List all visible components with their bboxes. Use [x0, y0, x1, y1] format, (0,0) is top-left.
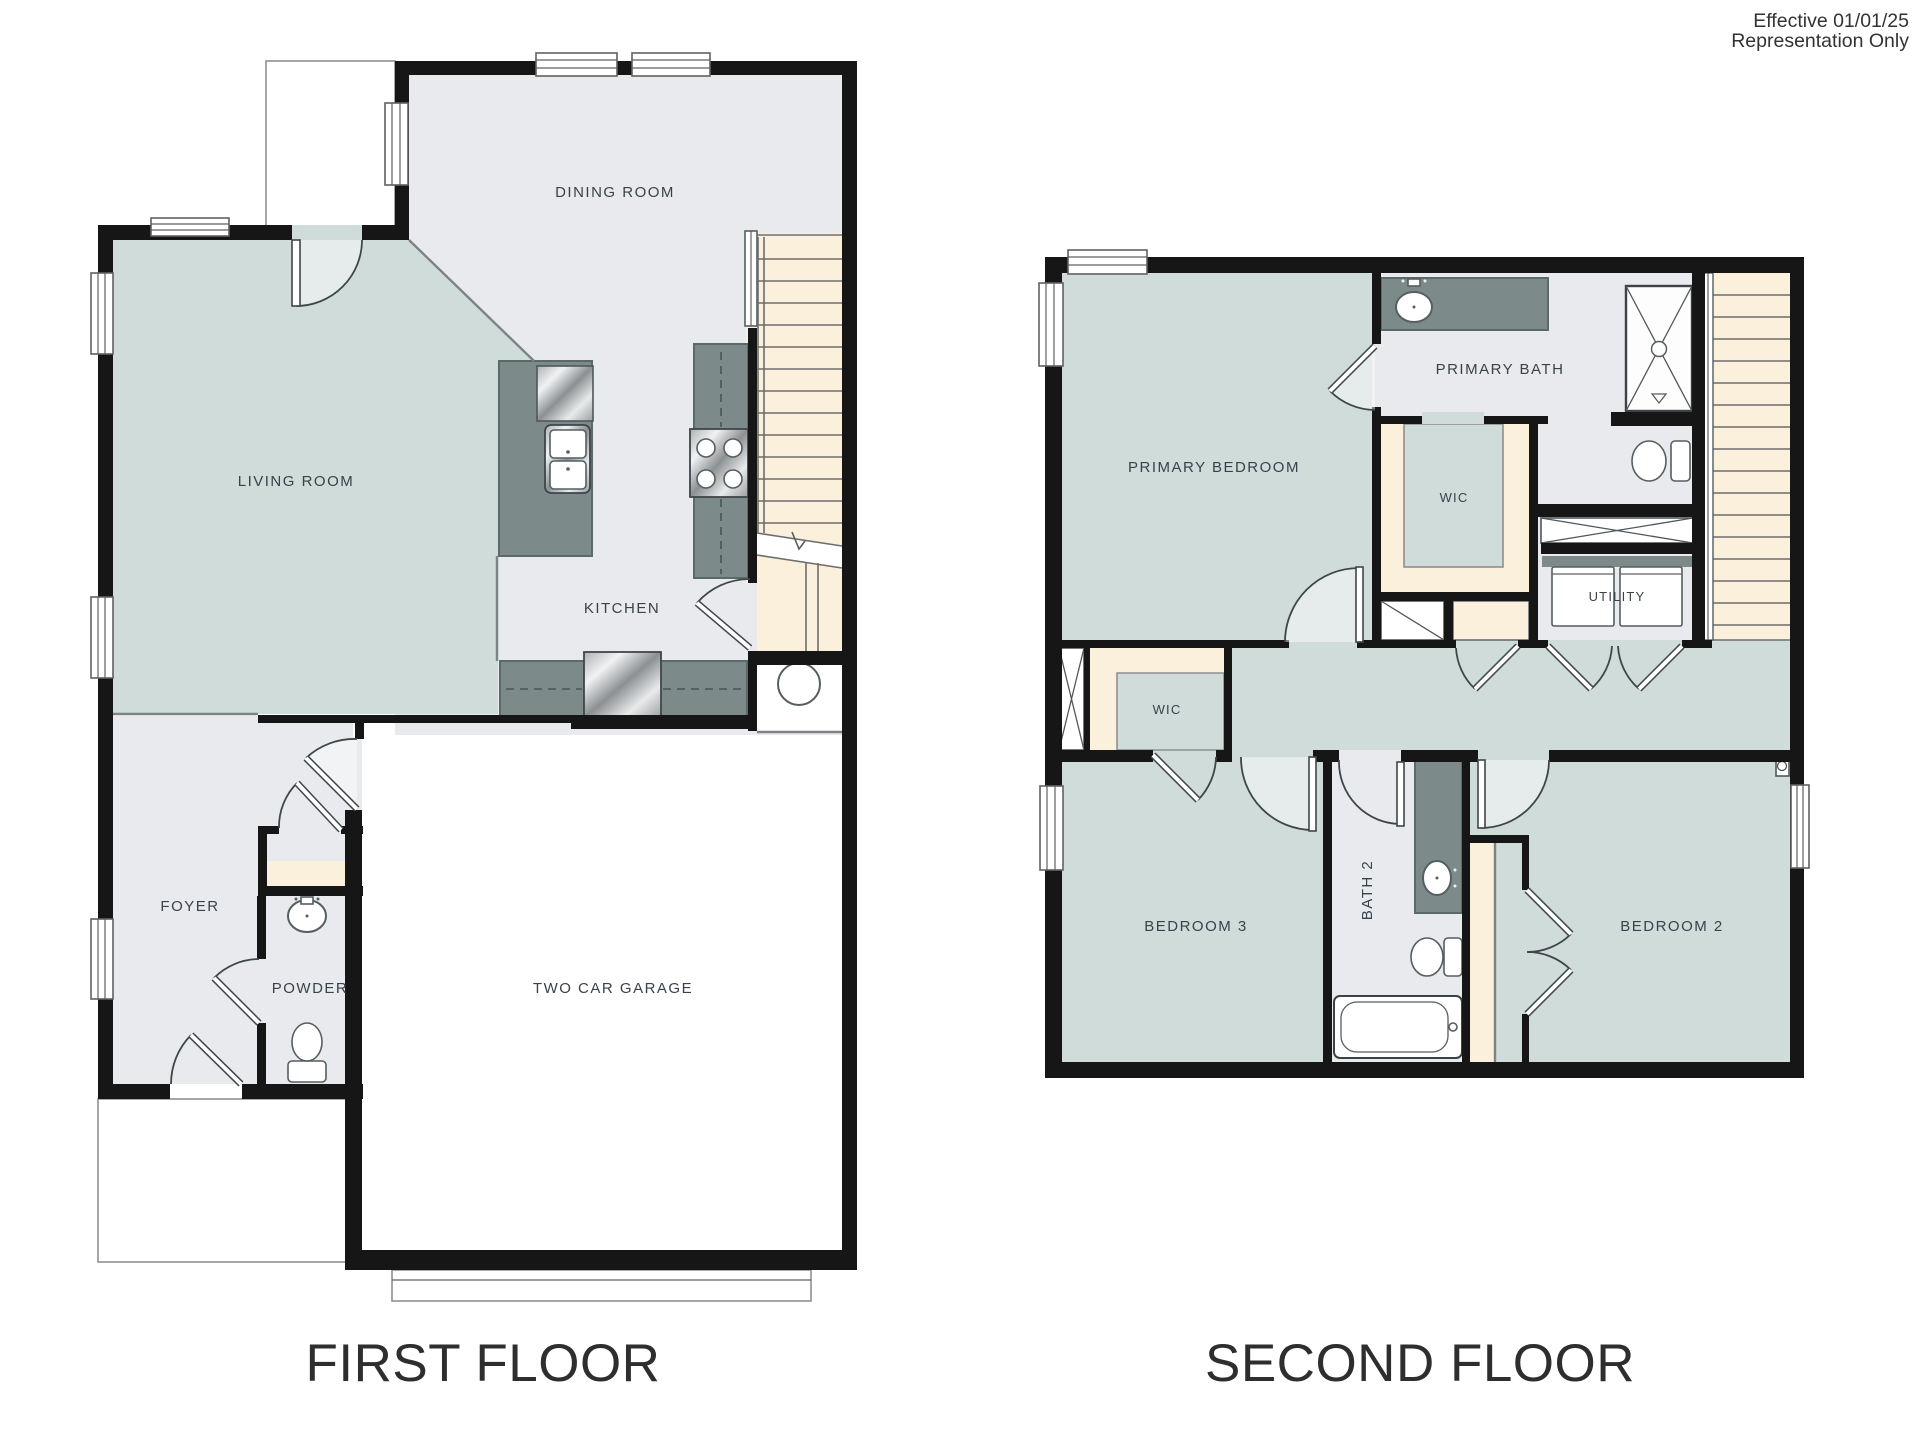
svg-text:KITCHEN: KITCHEN [584, 600, 660, 617]
svg-text:WIC: WIC [1153, 702, 1182, 717]
svg-text:PRIMARY BEDROOM: PRIMARY BEDROOM [1128, 459, 1300, 476]
svg-text:Effective 01/01/25: Effective 01/01/25 [1753, 10, 1909, 32]
svg-text:POWDER: POWDER [272, 980, 349, 997]
svg-text:WIC: WIC [1440, 490, 1469, 505]
svg-text:BEDROOM 3: BEDROOM 3 [1144, 918, 1248, 935]
svg-text:BATH 2: BATH 2 [1359, 860, 1376, 920]
svg-text:SECOND FLOOR: SECOND FLOOR [1205, 1334, 1635, 1393]
svg-text:TWO CAR GARAGE: TWO CAR GARAGE [533, 980, 693, 997]
svg-text:FOYER: FOYER [160, 898, 219, 915]
svg-text:LIVING ROOM: LIVING ROOM [238, 473, 355, 490]
svg-text:FIRST FLOOR: FIRST FLOOR [306, 1334, 661, 1393]
svg-text:DINING ROOM: DINING ROOM [555, 184, 675, 201]
svg-text:BEDROOM 2: BEDROOM 2 [1620, 918, 1724, 935]
svg-text:Representation Only: Representation Only [1731, 30, 1909, 52]
svg-text:UTILITY: UTILITY [1589, 589, 1646, 604]
svg-text:PRIMARY BATH: PRIMARY BATH [1436, 361, 1565, 378]
